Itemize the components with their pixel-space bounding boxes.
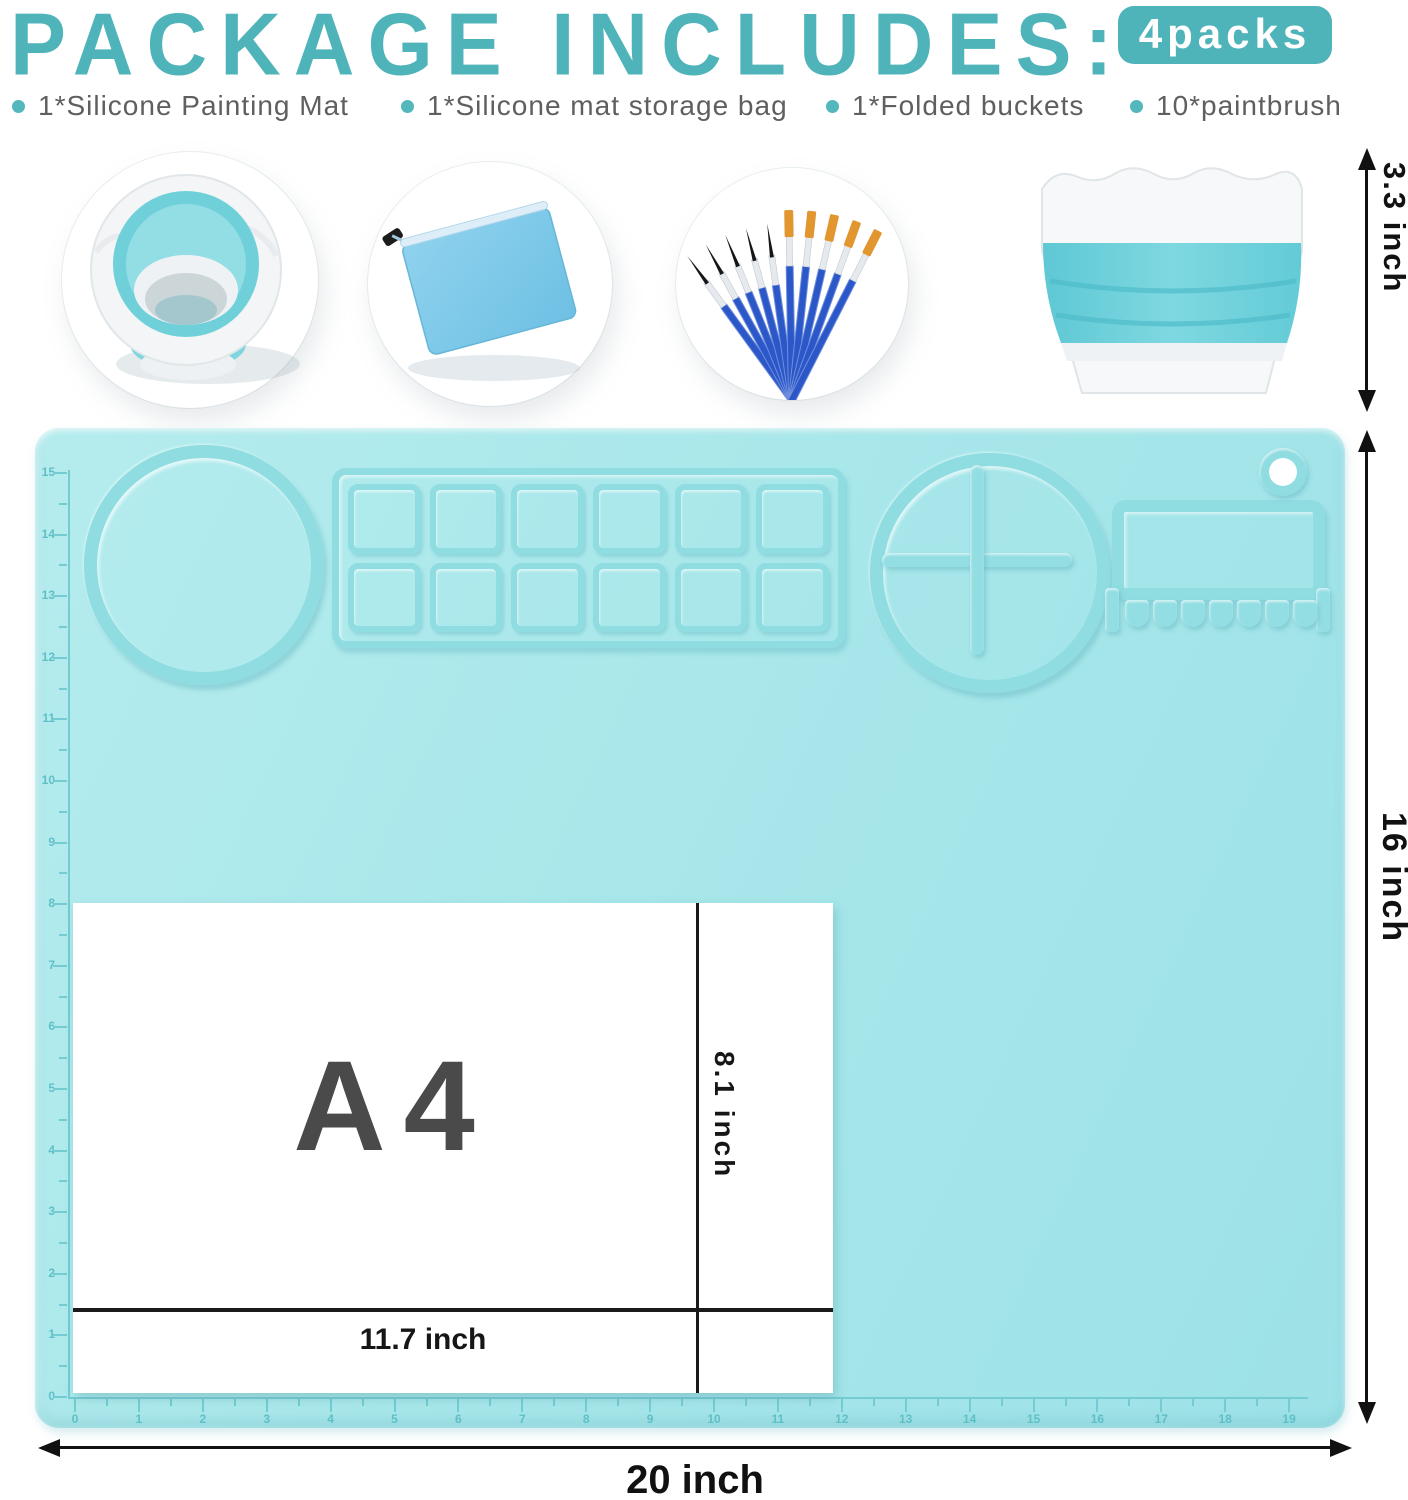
ruler-tick [426,1399,428,1406]
palette-cell [430,563,503,633]
collapsible-bucket-top-photo [62,152,318,408]
storage-bag-illustration [368,162,612,406]
ruler-tick [53,657,67,659]
arrowhead-icon [1358,1402,1376,1424]
ruler-tick [53,1273,67,1275]
ruler-tick [969,1399,971,1412]
ruler-tick [59,1119,67,1121]
list-item-paintbrush: 10*paintbrush [1130,88,1342,124]
ruler-number: 6 [450,1412,466,1426]
ruler-tick [59,503,67,505]
palette-cell [430,484,503,554]
ruler-tick [1256,1399,1258,1406]
ruler-tick [234,1399,236,1406]
list-item-label: 10*paintbrush [1156,90,1342,122]
ruler-tick [59,934,67,936]
palette-cell [348,563,421,633]
arrowhead-icon [1358,390,1376,412]
hanging-hole [1259,448,1307,496]
ruler-tick [59,811,67,813]
ruler-number: 9 [642,1412,658,1426]
arrowhead-icon [1330,1439,1352,1457]
ruler-tick [53,842,67,844]
ruler-tick [53,472,67,474]
ruler-tick [1160,1399,1162,1412]
bucket-height-label: 3.3 inch [1376,162,1408,293]
brush-rest-foot [1316,588,1330,632]
folded-bucket-side-photo [1016,143,1328,407]
brush-rest-slot [1265,600,1289,627]
mat-width-arrow [54,1446,1336,1449]
ruler-tick [1065,1399,1067,1406]
palette-cell [593,484,666,554]
ruler-tick [298,1399,300,1406]
brush-rest-slot [1293,600,1317,627]
ruler-number: 12 [834,1412,850,1426]
ruler-number: 8 [578,1412,594,1426]
palette-cell [348,484,421,554]
ruler-tick [457,1399,459,1412]
brush-rest-slot [1237,600,1261,627]
ruler-tick [53,534,67,536]
ruler-tick [585,1399,587,1412]
ruler-tick [489,1399,491,1406]
palette-cell [756,484,829,554]
bullet-icon [12,100,25,113]
storage-bag-photo [368,162,612,406]
bucket-top-illustration [62,152,318,408]
ruler-tick [713,1399,715,1412]
ruler-tick [1033,1399,1035,1412]
bullet-icon [826,100,839,113]
list-item-label: 1*Silicone mat storage bag [427,90,788,122]
palette-cell [511,563,584,633]
ruler-number: 17 [1153,1412,1169,1426]
ruler-tick [59,626,67,628]
ruler-tick [53,780,67,782]
ruler-tick [53,1396,67,1398]
ruler-tick [53,1211,67,1213]
ruler-number: 10 [706,1412,722,1426]
left-ruler [68,470,70,1399]
hanging-hole-opening [1269,458,1297,486]
ruler-tick [59,996,67,998]
ruler-tick [170,1399,172,1406]
ruler-tick [681,1399,683,1406]
ruler-tick [53,1026,67,1028]
paintbrush-set-photo [676,168,908,400]
ruler-number: 19 [1281,1412,1297,1426]
palette-grid [332,468,845,648]
ruler-tick [59,749,67,751]
ruler-tick [873,1399,875,1406]
paint-cup-ring [84,445,324,685]
brush-rest-slot [1125,600,1149,627]
ruler-tick [106,1399,108,1406]
bottom-ruler [68,1397,1308,1399]
page-title: PACKAGE INCLUDES: [10,0,1125,88]
ruler-number: 2 [195,1412,211,1426]
ruler-tick [53,718,67,720]
ruler-tick [330,1399,332,1412]
ruler-tick [53,595,67,597]
ruler-tick [59,1180,67,1182]
arrowhead-icon [1358,430,1376,452]
ruler-number: 7 [514,1412,530,1426]
ruler-number: 15 [1026,1412,1042,1426]
mixing-circle-divider [970,465,984,655]
ruler-tick [59,1057,67,1059]
paintbrush-illustration [676,168,908,400]
brush-rest-slot [1153,600,1177,627]
bullet-icon [401,100,414,113]
product-infographic: PACKAGE INCLUDES: 4packs 1*Silicone Pain… [0,0,1408,1500]
ruler-tick [59,1304,67,1306]
mat-width-label: 20 inch [555,1458,835,1500]
ruler-number: 11 [770,1412,786,1426]
bucket-height-arrow [1365,158,1368,402]
list-item-painting-mat: 1*Silicone Painting Mat [12,88,349,124]
folded-bucket-illustration [1016,143,1328,407]
ruler-tick [59,688,67,690]
paper-width-label: 11.7 inch [283,1323,563,1357]
ruler-tick [1192,1399,1194,1406]
ruler-number: 18 [1217,1412,1233,1426]
paper-height-line [696,903,699,1393]
palette-cell [511,484,584,554]
ruler-tick [521,1399,523,1412]
ruler-tick [649,1399,651,1412]
ruler-tick [1096,1399,1098,1412]
ruler-tick [59,1242,67,1244]
brush-rest-frame [1112,500,1325,600]
ruler-tick [394,1399,396,1412]
ruler-tick [1288,1399,1290,1412]
ruler-tick [138,1399,140,1412]
ruler-tick [266,1399,268,1412]
ruler-tick [1001,1399,1003,1406]
ruler-tick [59,872,67,874]
ruler-tick [937,1399,939,1406]
ruler-tick [553,1399,555,1406]
brush-rest-foot [1105,588,1119,632]
list-item-label: 1*Silicone Painting Mat [38,90,349,122]
ruler-tick [1224,1399,1226,1412]
ruler-number: 1 [131,1412,147,1426]
arrowhead-icon [1358,148,1376,170]
mat-height-arrow [1365,446,1368,1406]
mat-height-label: 16 inch [1374,812,1408,943]
ruler-tick [53,1334,67,1336]
ruler-tick [809,1399,811,1406]
ruler-number: 16 [1089,1412,1105,1426]
ruler-number: 3 [259,1412,275,1426]
ruler-tick [362,1399,364,1406]
ruler-tick [53,965,67,967]
quartered-mixing-circle [870,453,1110,693]
ruler-number: 4 [323,1412,339,1426]
ruler-tick [59,564,67,566]
ruler-tick [1128,1399,1130,1406]
list-item-label: 1*Folded buckets [852,90,1084,122]
ruler-tick [745,1399,747,1406]
ruler-tick [53,1088,67,1090]
paper-width-line [73,1308,833,1312]
brush-rest-slot [1209,600,1233,627]
paper-height-label: 8.1 inch [708,1051,740,1179]
ruler-tick [59,1365,67,1367]
palette-cell [756,563,829,633]
paper-size-label: A4 [73,1033,713,1180]
palette-cell [675,484,748,554]
arrowhead-icon [38,1439,60,1457]
palette-cell [593,563,666,633]
a4-paper: A4 8.1 inch 11.7 inch [73,903,833,1393]
palette-cell [675,563,748,633]
ruler-tick [74,1399,76,1412]
ruler-tick [777,1399,779,1412]
bullet-icon [1130,100,1143,113]
ruler-tick [617,1399,619,1406]
ruler-tick [202,1399,204,1412]
ruler-number: 0 [67,1412,83,1426]
ruler-number: 5 [387,1412,403,1426]
list-item-storage-bag: 1*Silicone mat storage bag [401,88,788,124]
ruler-tick [905,1399,907,1412]
ruler-tick [841,1399,843,1412]
ruler-number: 13 [898,1412,914,1426]
pack-count-badge: 4packs [1118,6,1332,64]
ruler-tick [53,903,67,905]
brush-rest-slot [1181,600,1205,627]
ruler-number: 14 [962,1412,978,1426]
silicone-mat: 1514131211109876543210012345678910111213… [35,428,1345,1428]
list-item-folded-buckets: 1*Folded buckets [826,88,1084,124]
ruler-tick [53,1150,67,1152]
